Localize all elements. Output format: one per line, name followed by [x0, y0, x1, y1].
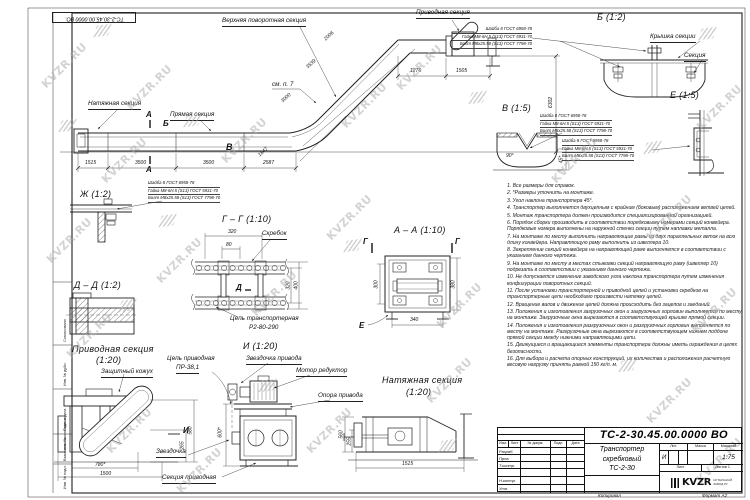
fastener-callout-b: Шайба 8 ГОСТ 6958-78 Гайка М8-6Н.5 (S13)…	[452, 26, 532, 49]
note-item: 7. На монтаже по месту выполнить направл…	[507, 234, 744, 246]
name-line-3: ТС-2-30	[600, 464, 644, 473]
dim-drive-780: 780*	[95, 463, 105, 468]
detail-mark-e: Е	[359, 322, 364, 330]
drive-chain-label-2: ПР-38,1	[176, 365, 199, 374]
detail-b-linework	[532, 38, 708, 97]
dim-drive-560: 560	[189, 426, 194, 434]
dim-3500b: 3500	[203, 161, 214, 166]
view-gg-title: Г – Г (1:10)	[222, 215, 271, 224]
name-line-2: скребковый	[600, 455, 644, 464]
row-tcontrol: Т.контр.	[499, 464, 515, 468]
nut-spec: Гайка М8-6Н.5 (S13) ГОСТ 5931-70	[452, 34, 532, 42]
row-ncontrol: Н.контр.	[499, 479, 516, 483]
upper-turn-section-label: Верхняя поворотная секция	[222, 18, 306, 27]
cut-mark-g-left: Г	[363, 238, 368, 246]
col-list: Лист	[508, 441, 520, 448]
drive-view-scale: (1:20)	[96, 356, 121, 365]
dim-90deg: 90°	[506, 154, 514, 159]
view-i-title: И (1:20)	[243, 342, 278, 351]
note-item: 1. Все размеры для справок.	[507, 183, 744, 189]
washer-spec: Шайба 8 ГОСТ 6958-78	[452, 26, 532, 34]
tension-screw-shape	[388, 428, 412, 445]
detail-mark-b: Б	[163, 120, 169, 128]
sprocket-label: Звездочка	[156, 449, 186, 458]
lit-header: Лит.	[659, 444, 687, 451]
detail-e-title: Е (1:5)	[670, 91, 699, 100]
section-label: Секция	[684, 53, 706, 62]
dim-tension-1515: 1515	[402, 462, 413, 467]
dim-drive-265: 265	[181, 441, 186, 449]
washer-spec: Шайба 8 ГОСТ 6958-78	[540, 113, 612, 121]
dim-gg-80: 80	[226, 243, 232, 248]
col-date: Дата	[566, 441, 584, 448]
section-mark-a-top: А	[146, 111, 152, 119]
sheets-count: 1	[728, 466, 730, 470]
drive-support-label: Опора привода	[318, 393, 363, 402]
conveyor-chain-label-2: Р2-80-290	[249, 325, 278, 332]
drive-sprocket-label: Звездочка привода	[246, 356, 302, 365]
bolt-spec: Болт М8х25.58 (S13) ГОСТ 7798-70	[148, 195, 220, 203]
title-block-doc-number: ТС-2-30.45.00.0000 ВО	[584, 428, 743, 444]
note-item: 11. После установки транспортерной и при…	[507, 288, 744, 300]
kvzr-logo-text: KVZR	[682, 478, 711, 488]
col-doc: № докум.	[520, 441, 550, 448]
lit-value: И	[659, 451, 668, 465]
row-approved: Утв.	[499, 487, 508, 491]
row-checked: Пров.	[499, 457, 510, 461]
dim-1515: 1515	[85, 161, 96, 166]
note-item: 5. Монтаж транспортера должен производит…	[507, 213, 744, 219]
scale-value: 1:75	[713, 451, 743, 465]
note-item: 4. Транспортер выполняется двухцепным с …	[507, 205, 744, 211]
detail-v-title: В (1:5)	[502, 104, 531, 113]
detail-dd-title: Д – Д (1:2)	[74, 281, 121, 290]
sheet-header: Лист	[659, 465, 701, 472]
bolt-spec: Болт М8х25.58 (S13) ГОСТ 7798-70	[452, 41, 532, 49]
cut-mark-g-right: Г	[455, 238, 460, 246]
dim-6302: 6302	[549, 97, 554, 108]
logo-sub-2: ЗАВОД.РУ	[713, 483, 732, 486]
note-item: 2. *Размеры уточнить на монтаже.	[507, 190, 744, 196]
doc-number-stamp-text: ТС-2-30.45.00.0000 ВО.	[65, 15, 124, 20]
detail-b-title: Б (1:2)	[597, 13, 626, 22]
title-block: Изм. Лист № докум. Подп. Дата Разраб. Пр…	[497, 427, 742, 492]
washer-spec: Шайба 8 ГОСТ 6958-78	[148, 180, 220, 188]
drive-section-label: Приводная секция	[416, 10, 470, 19]
mass-header: Масса	[687, 444, 713, 451]
conveyor-chain-label-1: Цепь транспортерная	[230, 316, 299, 323]
dim-gg-400: 400	[295, 281, 300, 289]
detail-v-linework	[493, 133, 569, 170]
note-item: 9. На монтаже по месту в местах стыковки…	[507, 261, 744, 273]
scale-header: Масштаб	[713, 444, 743, 451]
margin-label-inv-orig: Инв. № подл.	[64, 465, 68, 489]
dim-aa-380: 380	[452, 280, 457, 288]
kvzr-logo-icon	[671, 478, 680, 488]
row-developed: Разраб.	[499, 450, 513, 454]
company-logo-cell: KVZR КОТЕЛЬНЫЙ ЗАВОД.РУ	[659, 472, 743, 493]
dim-tension-255: 255	[348, 437, 353, 445]
protective-casing-label: Защитный кожух	[101, 369, 153, 378]
dim-1505: 1505	[456, 69, 467, 74]
section-mark-a-bottom: А	[146, 166, 152, 174]
see-note-7-label: см. п. 7	[272, 82, 293, 89]
margin-label-repl-inv: Взам. инв. №	[64, 437, 68, 461]
drawing-sheet: KVZR.RU KVZR.RU KVZR.RU KVZR.RU KVZR.RU …	[0, 0, 750, 500]
name-line-1: Транспортер	[600, 445, 644, 454]
nut-spec: Гайка М8-6Н.5 (S13) ГОСТ 5931-70	[540, 121, 612, 129]
dim-gg-320w: 320	[228, 230, 236, 235]
fastener-callout-zh: Шайба 8 ГОСТ 6958-78 Гайка М8-6Н.5 (S13)…	[148, 180, 220, 203]
dim-tension-560: 560	[340, 430, 345, 438]
section-cover-label: Крышка секции	[650, 34, 696, 43]
dim-drive-1500: 1500	[100, 472, 111, 477]
dim-aa-300: 300	[375, 280, 380, 288]
doc-number-stamp: ТС-2-30.45.00.0000 ВО.	[52, 12, 136, 23]
note-item: 10. Не допускается изменение заводского …	[507, 274, 744, 286]
dim-2587: 2587	[263, 161, 274, 166]
dim-i-600: 600*	[219, 427, 224, 437]
sheets-header: Листов 1	[701, 465, 743, 472]
note-item: 15. Движущиеся и вращающиеся элементы тр…	[507, 342, 744, 354]
technical-notes: 1. Все размеры для справок. 2. *Размеры …	[507, 183, 744, 369]
fastener-callout-v: Шайба 8 ГОСТ 6958-78 Гайка М8-6Н.5 (S13)…	[540, 113, 612, 136]
copied-label: Копировал	[598, 494, 621, 499]
scraper-label: Скребок	[262, 231, 287, 240]
nut-spec: Гайка М8-6Н.5 (S13) ГОСТ 5931-70	[148, 188, 220, 196]
view-aa-title: А – А (1:10)	[394, 226, 446, 235]
bolt-spec: Болт М8х25.58 (S13) ГОСТ 7798-70	[540, 128, 612, 136]
title-block-name: Транспортер скребковый ТС-2-30	[584, 444, 659, 476]
sheets-header-text: Листов	[715, 466, 727, 470]
note-item: 3. Угол наклона транспортера 45°.	[507, 198, 744, 204]
margin-label-inv-dup: Инв. № дубл.	[64, 362, 68, 386]
margin-label-sign-date: Подп. и дата	[64, 409, 68, 431]
drive-chain-label-1: Цепь приводная	[167, 356, 215, 363]
mass-value	[687, 451, 713, 465]
cut-mark-d: Д	[236, 284, 242, 292]
gear-motor-label: Мотор редуктор	[296, 368, 347, 377]
dim-3500a: 3500	[135, 161, 146, 166]
scraper-shape	[218, 261, 229, 275]
col-izm: Изм.	[498, 441, 508, 448]
col-sign: Подп.	[550, 441, 566, 448]
top-chain-shape	[195, 262, 286, 274]
dim-aa-340: 340	[410, 318, 418, 323]
note-item: 6. Порядок сборки производить в соответс…	[507, 220, 744, 232]
kvzr-logo-subtext: КОТЕЛЬНЫЙ ЗАВОД.РУ	[713, 479, 732, 486]
margin-label-agreed: Согласовано	[64, 319, 68, 342]
detail-zh-title: Ж (1:2)	[80, 190, 111, 199]
format-label: Формат А2	[702, 494, 727, 499]
note-item: 8. Закрепление секций конвейера на напра…	[507, 247, 744, 259]
